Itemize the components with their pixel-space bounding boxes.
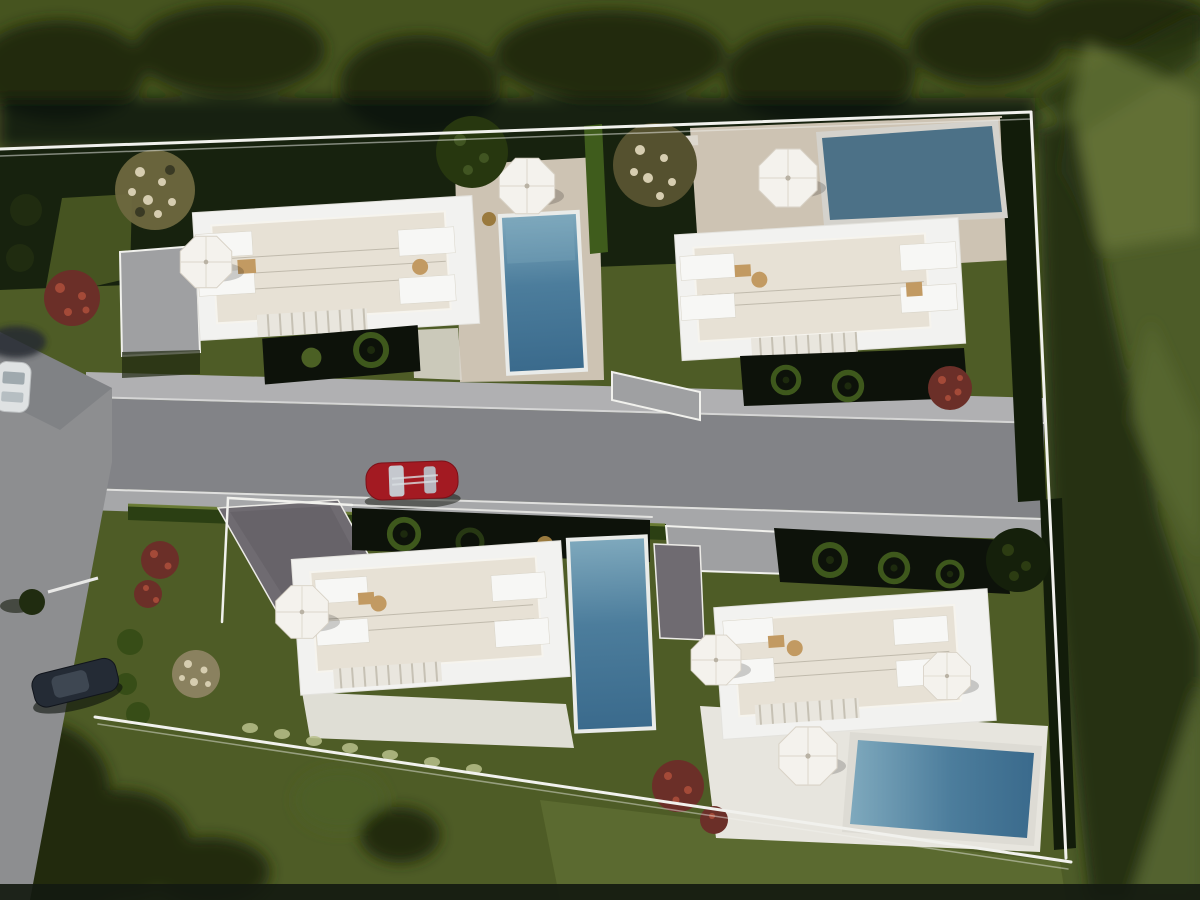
- aerial-render: [0, 0, 1200, 900]
- top-left-walkway: [412, 328, 462, 380]
- parasol: [499, 158, 554, 213]
- swimming-pool-bottom-right: [842, 732, 1042, 846]
- swimming-pool-top-left: [500, 212, 586, 374]
- white-flowering-shrub: [172, 650, 220, 698]
- red-shrub: [928, 366, 972, 410]
- parasol: [276, 586, 329, 639]
- swimming-pool-top-right: [816, 120, 1008, 226]
- edge-bush: [10, 194, 42, 226]
- parasol: [923, 652, 970, 699]
- shade-below-slab: [122, 350, 200, 378]
- parasol: [180, 236, 232, 288]
- bottom-edge-shadow: [0, 884, 1200, 900]
- boundary-tree: [986, 528, 1050, 592]
- flowering-tree-top-left: [115, 150, 195, 230]
- parasol: [759, 149, 817, 207]
- red-sports-car: [363, 460, 461, 510]
- parasol: [691, 635, 741, 685]
- tree-top-left-lot: [436, 116, 508, 188]
- garden-table: [482, 212, 496, 226]
- swimming-pool-bottom-left: [568, 536, 654, 731]
- parasol: [779, 727, 837, 785]
- edge-bush: [6, 244, 34, 272]
- red-shrub-top-left: [44, 270, 100, 326]
- flowering-tree-top-right: [613, 123, 697, 207]
- aerial-render-figure: [0, 0, 1200, 900]
- pool-house-roof: [654, 544, 704, 640]
- street-tree: [19, 589, 45, 615]
